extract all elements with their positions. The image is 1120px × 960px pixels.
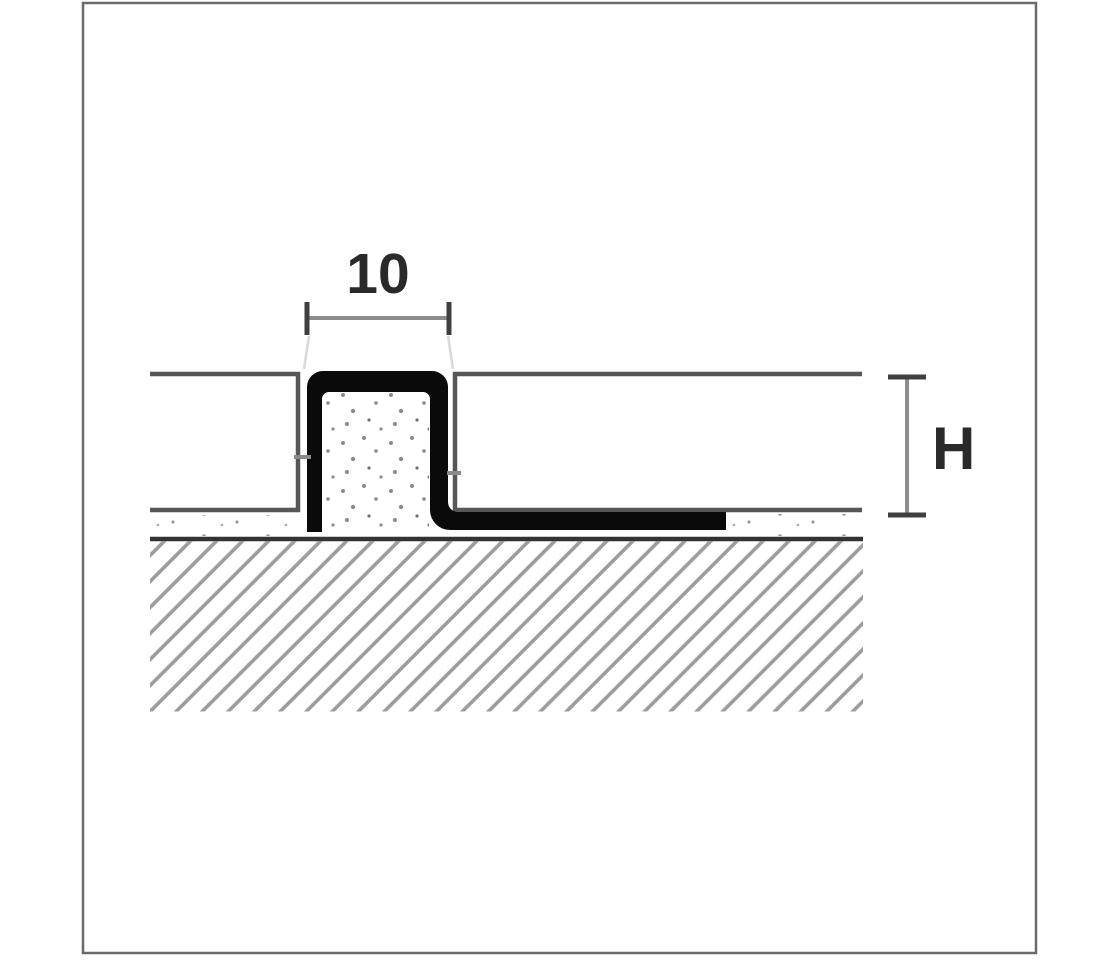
width-dimension-label: 10 — [346, 242, 409, 306]
substrate — [150, 539, 863, 712]
joint-filler — [323, 393, 429, 529]
substrate-hatch-area — [150, 542, 863, 712]
height-dimension-label: H — [932, 415, 975, 482]
page: 10 H — [0, 0, 1120, 960]
drawing-canvas-border — [83, 3, 1036, 953]
profile-cross-section-diagram: 10 H — [0, 0, 1120, 960]
adhesive-left — [152, 515, 298, 536]
adhesive-right — [730, 514, 860, 536]
